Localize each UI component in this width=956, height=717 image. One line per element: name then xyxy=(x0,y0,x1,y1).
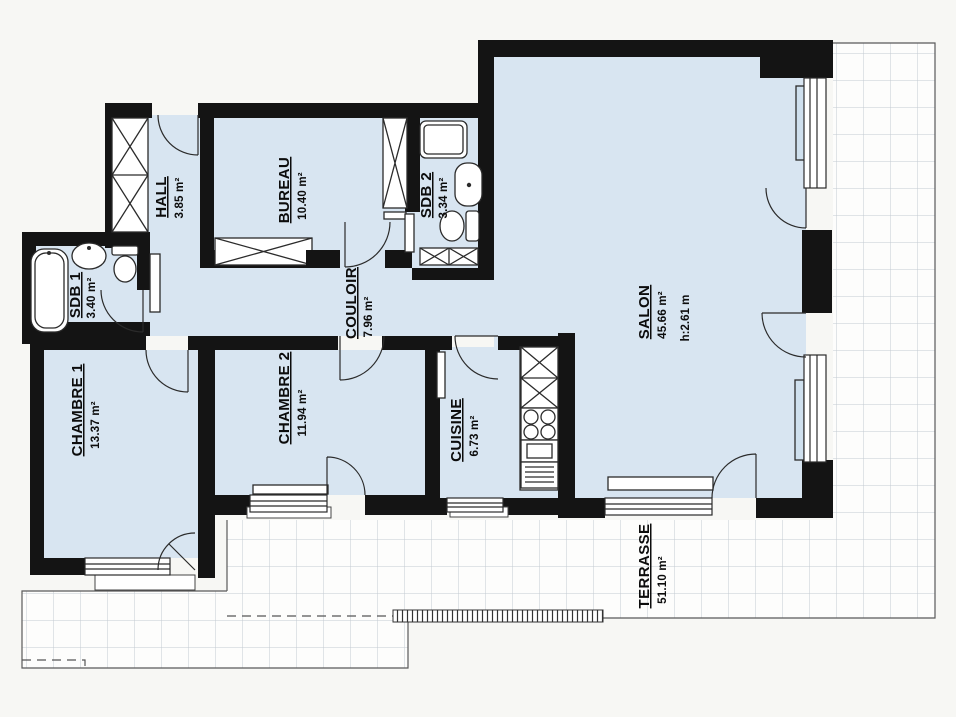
room-ceiling-height: h:2.61 m xyxy=(680,295,692,342)
radiator-icon xyxy=(150,254,160,312)
wardrobe-icon xyxy=(215,238,315,266)
room-bureau-floor xyxy=(214,115,405,250)
wall xyxy=(558,498,605,518)
window-icon xyxy=(804,78,826,188)
window-icon xyxy=(447,498,503,512)
room-name: SDB 1 xyxy=(67,272,84,318)
radiator-icon xyxy=(437,352,445,398)
wall xyxy=(440,498,447,515)
sliding-door-icon xyxy=(605,498,712,515)
wall xyxy=(198,336,215,578)
wall xyxy=(760,40,833,78)
window-icon xyxy=(250,495,327,512)
stove-icon xyxy=(521,408,558,440)
washbasin-icon xyxy=(455,163,482,206)
room-area: 3.85 m² xyxy=(174,177,186,218)
window-icon xyxy=(804,355,826,462)
toilet-icon xyxy=(112,246,138,282)
kitchen-sink-icon xyxy=(521,440,558,462)
room-area: 45.66 m² xyxy=(657,291,669,339)
room-chambre2-floor xyxy=(215,350,425,495)
washbasin-icon xyxy=(72,243,106,269)
room-name: CHAMBRE 2 xyxy=(276,352,293,445)
room-area: 11.94 m² xyxy=(297,390,309,437)
room-area: 3.34 m² xyxy=(438,177,450,218)
room-chambre1-floor xyxy=(44,350,198,558)
wall xyxy=(30,336,44,572)
room-name: TERRASSE xyxy=(636,524,653,609)
room-area: 10.40 m² xyxy=(297,172,309,220)
room-area: 6.73 m² xyxy=(469,415,481,456)
kitchen-cabinet-icon xyxy=(420,248,478,265)
room-area: 51.10 m² xyxy=(657,556,669,604)
room-name: COULOIR xyxy=(343,267,360,339)
room-name: CHAMBRE 1 xyxy=(69,364,86,457)
floor-plan: HALL 3.85 m² BUREAU 10.40 m² SDB 2 3.34 … xyxy=(0,0,956,717)
wall xyxy=(30,558,85,575)
window-icon xyxy=(85,558,170,575)
wall xyxy=(385,250,412,268)
room-name: SDB 2 xyxy=(418,172,435,218)
window-shutter xyxy=(608,477,713,490)
window-sill xyxy=(95,575,195,590)
wall xyxy=(198,103,490,118)
label-hall: HALL 3.85 m² xyxy=(153,176,186,218)
label-sdb2: SDB 2 3.34 m² xyxy=(418,172,450,219)
room-name: BUREAU xyxy=(276,157,293,224)
wall xyxy=(382,336,452,350)
bathtub-icon xyxy=(31,249,68,332)
wall xyxy=(412,268,494,280)
door-leaf xyxy=(405,214,414,252)
wall xyxy=(200,103,214,268)
room-area: 7.96 m² xyxy=(363,296,375,337)
shower-icon xyxy=(420,121,467,158)
wall xyxy=(558,333,575,515)
wall xyxy=(198,336,338,350)
wardrobe-icon xyxy=(112,118,148,232)
room-area: 13.37 m² xyxy=(90,401,102,449)
room-area: 3.40 m² xyxy=(86,277,98,318)
terrace-drain-grille xyxy=(393,610,603,622)
wall xyxy=(802,460,833,518)
dishwasher-icon xyxy=(521,462,558,488)
room-name: SALON xyxy=(636,285,653,340)
label-sdb1: SDB 1 3.40 m² xyxy=(67,272,98,319)
window-shutter xyxy=(253,485,328,494)
wall xyxy=(30,336,146,350)
wall xyxy=(802,230,832,313)
room-name: CUISINE xyxy=(448,398,465,462)
window-shutter xyxy=(795,380,804,460)
scanned-floor-plan-page: HALL 3.85 m² BUREAU 10.40 m² SDB 2 3.34 … xyxy=(0,0,956,717)
wall xyxy=(365,495,425,515)
wall xyxy=(137,232,150,290)
wall xyxy=(478,40,494,280)
room-name: HALL xyxy=(153,176,170,218)
wardrobe-icon xyxy=(383,118,407,219)
wall xyxy=(215,495,250,515)
